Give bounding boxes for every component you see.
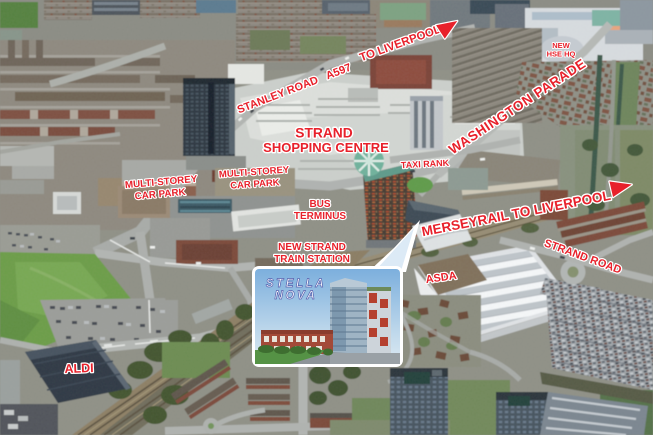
svg-text:ALDI: ALDI [64, 361, 94, 376]
svg-text:HSE HQ: HSE HQ [547, 50, 576, 59]
svg-text:TERMINUS: TERMINUS [294, 211, 347, 222]
svg-text:STRAND: STRAND [295, 126, 353, 141]
svg-text:BUS: BUS [309, 199, 330, 210]
svg-text:NEW STRAND: NEW STRAND [278, 242, 346, 253]
svg-text:SHOPPING CENTRE: SHOPPING CENTRE [263, 140, 389, 155]
svg-text:NOVA: NOVA [275, 290, 318, 302]
svg-text:TRAIN STATION: TRAIN STATION [274, 254, 350, 265]
svg-text:STELLA: STELLA [266, 278, 326, 290]
